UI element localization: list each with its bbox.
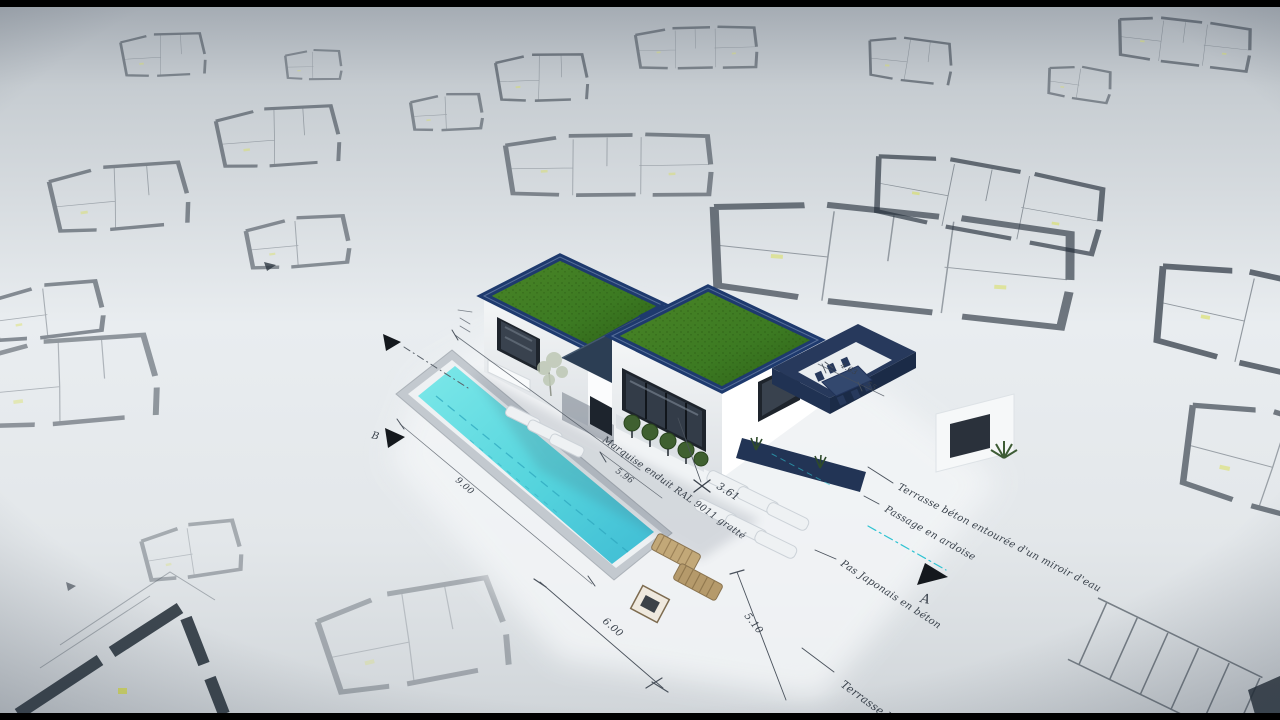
vignette <box>0 0 1280 720</box>
scene-canvas: Marquise enduit RAL 9011 gratté 5.96 3.6… <box>0 0 1280 720</box>
letterbox-bottom <box>0 713 1280 720</box>
letterbox-top <box>0 0 1280 7</box>
architectural-render: Marquise enduit RAL 9011 gratté 5.96 3.6… <box>0 0 1280 720</box>
